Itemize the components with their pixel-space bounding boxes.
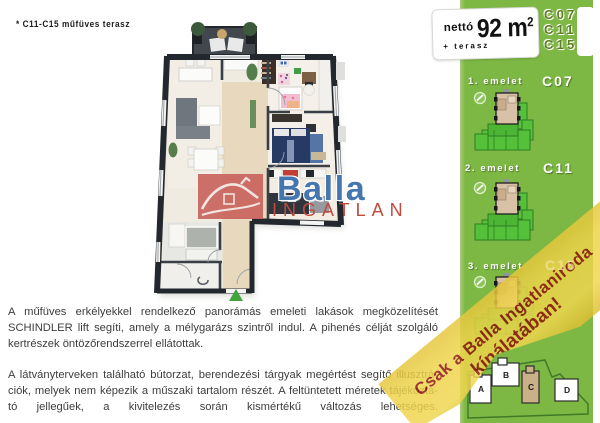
svg-text:B: B	[503, 370, 509, 380]
svg-text:A: A	[478, 384, 484, 394]
svg-text:D: D	[564, 385, 570, 395]
svg-text:INGATLAN: INGATLAN	[272, 200, 409, 220]
svg-text:C: C	[528, 382, 534, 392]
